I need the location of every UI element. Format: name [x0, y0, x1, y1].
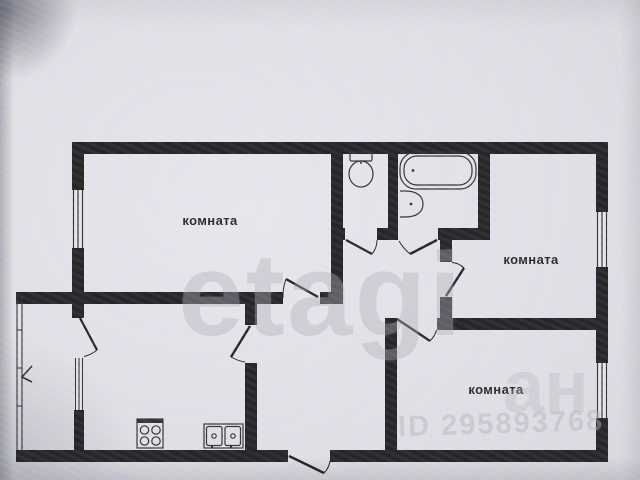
wall-room1-right	[331, 142, 343, 304]
wall-left-lower	[72, 248, 84, 318]
door-entrance	[289, 456, 324, 473]
wall-bath-right	[478, 142, 490, 240]
door-wc	[346, 240, 372, 254]
window-room1-left	[72, 190, 84, 248]
window-room3-right	[596, 363, 608, 418]
door-room1-arc	[283, 279, 286, 298]
door-balcony-arc	[84, 350, 97, 357]
wall-kitchen-balcony	[74, 410, 84, 450]
bathtub-icon	[400, 152, 476, 189]
stove-icon	[137, 419, 163, 448]
wall-room2-left-a	[440, 228, 452, 262]
wall-right-middle	[596, 267, 608, 363]
wall-room3-left	[385, 318, 397, 462]
door-entrance-arc	[324, 461, 330, 473]
door-room2-arc	[452, 263, 464, 269]
window-kitchen-balcony	[74, 358, 84, 410]
door-wc-arc	[372, 240, 377, 254]
washbasin-icon	[400, 191, 423, 217]
window-room2-right	[596, 212, 608, 267]
wall-left-upper	[72, 142, 84, 190]
wall-corridor-b	[377, 228, 398, 240]
wall-bottom-right	[330, 450, 608, 462]
door-room3	[397, 319, 430, 341]
floor-plan-drawing	[0, 0, 640, 480]
doors	[80, 240, 464, 473]
wall-kitchen-a	[245, 292, 257, 325]
door-room1	[286, 279, 318, 297]
kitchen-sink-icon	[204, 424, 243, 448]
room-label-middle-right: комната	[471, 252, 591, 267]
door-room3-arc	[430, 330, 437, 341]
floor-plan-photo: комната комната комната etagi ан ID 2958…	[0, 0, 640, 480]
balcony-railing	[17, 296, 22, 450]
door-kitchen-arc	[231, 357, 245, 362]
room-label-bottom-right: комната	[436, 382, 556, 397]
door-balcony	[80, 318, 97, 350]
door-kitchen	[231, 326, 250, 357]
wall-wc-bath-divider	[388, 142, 398, 228]
balcony-arrow-icon	[22, 366, 32, 382]
wall-right-upper	[596, 142, 608, 212]
door-bath	[410, 240, 437, 254]
wall-kitchen-b	[245, 363, 257, 462]
wall-balcony-top	[16, 292, 72, 304]
door-room2	[446, 268, 464, 296]
toilet-icon	[349, 152, 373, 187]
door-bath-arc	[399, 241, 410, 254]
wall-room2-room3-divider	[437, 318, 608, 330]
room-label-top-left: комната	[150, 213, 270, 228]
wall-corridor-a	[331, 228, 345, 240]
